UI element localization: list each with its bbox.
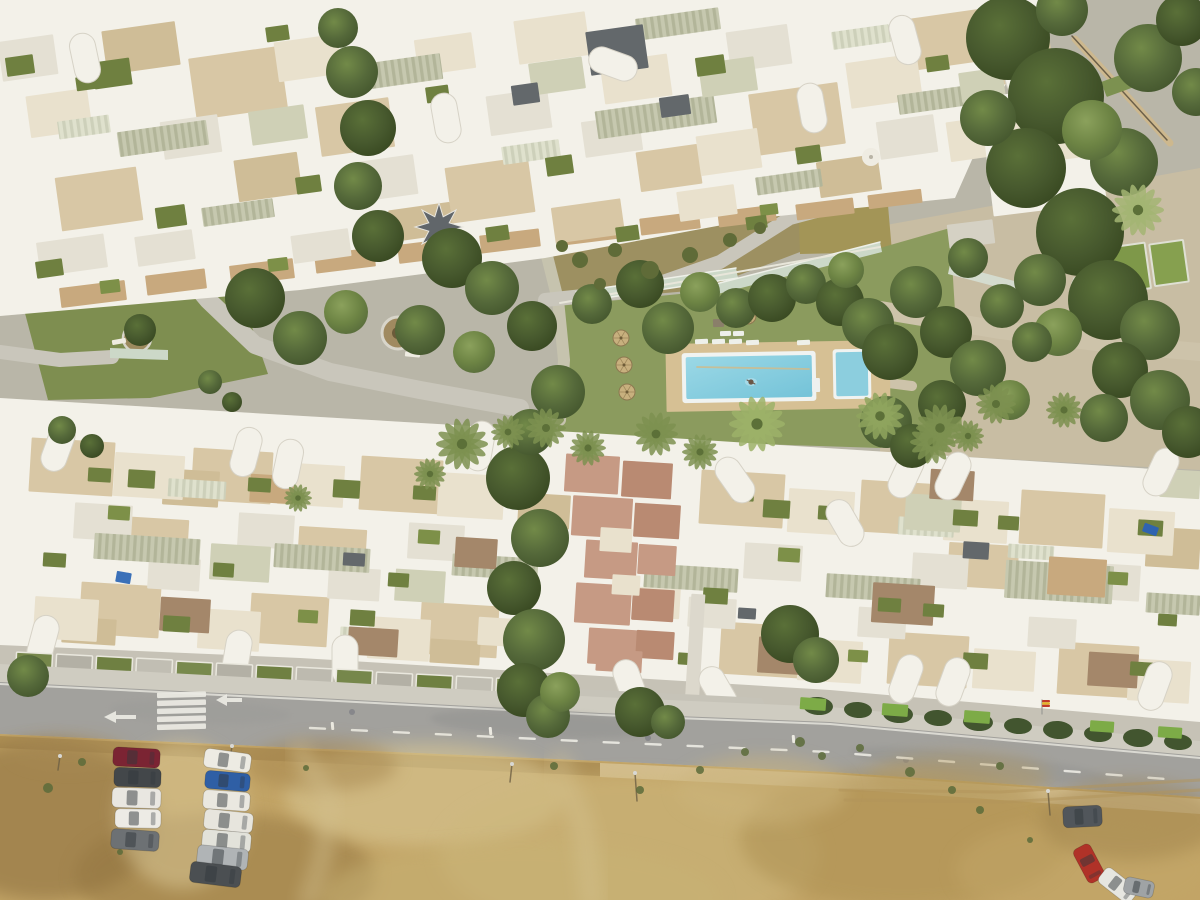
parked-car bbox=[113, 747, 161, 768]
roof-tile bbox=[168, 478, 227, 500]
ground-patch bbox=[677, 756, 847, 824]
path bbox=[0, 352, 112, 360]
tree bbox=[222, 392, 242, 412]
street-light-top bbox=[633, 771, 637, 775]
roof-tile bbox=[88, 467, 112, 482]
tree bbox=[980, 284, 1024, 328]
tree bbox=[453, 331, 495, 373]
aerial-photograph bbox=[0, 0, 1200, 900]
sun-lounger bbox=[712, 339, 725, 344]
roof-tile bbox=[925, 54, 950, 72]
parked-car bbox=[204, 770, 250, 792]
roof-tile bbox=[1018, 489, 1105, 548]
car-rear-glass bbox=[150, 771, 155, 784]
roof-tile bbox=[332, 479, 360, 499]
aerial-scene-svg bbox=[0, 0, 1200, 900]
roof-tile bbox=[5, 54, 35, 77]
roof-tile bbox=[265, 24, 290, 42]
roof-tile bbox=[388, 572, 410, 587]
green-pond bbox=[1149, 240, 1189, 286]
weed bbox=[795, 737, 805, 747]
roof-tile bbox=[43, 552, 67, 567]
roof-tile bbox=[778, 547, 801, 562]
roof-tile bbox=[1047, 556, 1107, 597]
palm-center bbox=[875, 411, 885, 421]
tree bbox=[651, 705, 685, 739]
roof-tile bbox=[848, 649, 869, 662]
parked-car bbox=[114, 767, 162, 788]
tree bbox=[80, 434, 104, 458]
tree bbox=[540, 672, 580, 712]
palm-center bbox=[652, 430, 661, 439]
weed bbox=[696, 766, 704, 774]
sun-lounger bbox=[720, 331, 731, 336]
roof-tile bbox=[248, 477, 272, 492]
shrub bbox=[572, 252, 588, 268]
car-rear-glass bbox=[148, 834, 154, 848]
shrub bbox=[594, 278, 606, 290]
tree bbox=[7, 655, 49, 697]
spanish-flag bbox=[1042, 702, 1050, 704]
parked-car bbox=[202, 789, 250, 811]
weed bbox=[78, 758, 86, 766]
roof-tile bbox=[636, 144, 703, 192]
palm-center bbox=[1133, 205, 1143, 215]
car-windshield bbox=[126, 790, 137, 805]
palm-center bbox=[542, 424, 550, 432]
tree bbox=[680, 272, 720, 312]
roof-tile bbox=[429, 638, 480, 665]
weed bbox=[550, 762, 558, 770]
front-lawn bbox=[1158, 726, 1183, 739]
tree bbox=[511, 509, 569, 567]
car-windshield bbox=[217, 793, 228, 808]
roof-tile bbox=[615, 224, 640, 242]
sun-lounger bbox=[746, 340, 759, 345]
palm-center bbox=[935, 423, 945, 433]
roof-tile bbox=[659, 94, 691, 118]
parked-car bbox=[110, 828, 159, 851]
tree bbox=[1062, 100, 1122, 160]
roof-tile bbox=[55, 167, 144, 232]
tree bbox=[225, 268, 285, 328]
weed bbox=[741, 748, 749, 756]
umbrella-pole bbox=[626, 391, 629, 394]
sun-lounger bbox=[733, 331, 744, 336]
shrub bbox=[608, 243, 622, 257]
main-pool bbox=[686, 355, 813, 399]
tree bbox=[572, 284, 612, 324]
palm-center bbox=[427, 471, 433, 477]
roof-tile bbox=[633, 503, 681, 540]
palm-center bbox=[457, 439, 467, 449]
street-light-top bbox=[230, 744, 234, 748]
car-windshield bbox=[212, 848, 225, 865]
tree bbox=[334, 162, 382, 210]
pool-steps bbox=[812, 378, 820, 392]
roof-tile bbox=[611, 574, 640, 596]
roof-tile bbox=[213, 562, 235, 577]
manhole bbox=[349, 709, 355, 715]
roof-tile bbox=[696, 128, 763, 176]
spanish-flag bbox=[1042, 705, 1050, 707]
tree bbox=[1080, 394, 1128, 442]
roof-tile bbox=[163, 615, 191, 633]
roof-tile bbox=[1158, 613, 1178, 626]
roof-tile bbox=[759, 203, 778, 216]
ground-patch bbox=[12, 736, 128, 768]
weed bbox=[948, 786, 956, 794]
front-lawn bbox=[1090, 720, 1115, 733]
front-lawn bbox=[882, 703, 909, 717]
street-light-top bbox=[1046, 789, 1050, 793]
tree bbox=[273, 311, 327, 365]
glass-walkway bbox=[110, 348, 168, 360]
roof-tile bbox=[99, 279, 120, 294]
tree bbox=[326, 46, 378, 98]
sun-lounger bbox=[695, 339, 708, 344]
sun-umbrella bbox=[613, 330, 629, 346]
car-windshield bbox=[217, 752, 229, 767]
weed bbox=[303, 765, 309, 771]
car-windshield bbox=[127, 750, 138, 765]
tree bbox=[486, 446, 550, 510]
car-windshield bbox=[125, 832, 137, 848]
roof-tile bbox=[343, 552, 366, 566]
roof-tile bbox=[695, 54, 726, 77]
roof-tile bbox=[350, 609, 376, 626]
parked-car bbox=[1062, 805, 1102, 828]
sun-umbrella bbox=[616, 357, 632, 373]
sun-umbrella bbox=[619, 384, 635, 400]
weed bbox=[636, 786, 644, 794]
roof-tile bbox=[923, 603, 945, 617]
car-rear-glass bbox=[1093, 808, 1098, 823]
roof-tile bbox=[762, 499, 790, 519]
front-lawn bbox=[800, 697, 827, 711]
weed bbox=[856, 744, 864, 752]
tree bbox=[352, 210, 404, 262]
roof-tile bbox=[703, 587, 729, 604]
weed bbox=[818, 752, 826, 760]
roof-tile bbox=[963, 541, 990, 560]
car-windshield bbox=[129, 811, 139, 825]
weed bbox=[976, 806, 984, 814]
spanish-flag bbox=[1042, 700, 1050, 702]
shrub bbox=[682, 247, 698, 263]
tree bbox=[198, 370, 222, 394]
palm-center bbox=[584, 444, 591, 451]
roof-tile bbox=[108, 505, 131, 520]
roof-tile bbox=[418, 529, 441, 544]
car-windshield bbox=[204, 865, 217, 882]
tree bbox=[318, 8, 358, 48]
roof-tile bbox=[876, 114, 939, 160]
tree bbox=[324, 290, 368, 334]
tree bbox=[507, 301, 557, 351]
tree bbox=[48, 416, 76, 444]
parked-car bbox=[112, 787, 162, 809]
umbrella-pole bbox=[620, 337, 623, 340]
roof-tile bbox=[485, 224, 510, 242]
roof-tile bbox=[298, 609, 319, 623]
shrub bbox=[723, 233, 737, 247]
roof-tile bbox=[878, 597, 902, 612]
roof-tile bbox=[445, 156, 536, 223]
roof-tile bbox=[998, 515, 1020, 530]
roof-tile bbox=[127, 469, 155, 489]
roof-tile bbox=[511, 82, 541, 106]
palm-center bbox=[751, 418, 762, 429]
car-rear-glass bbox=[239, 795, 245, 808]
car-windshield bbox=[1074, 808, 1083, 824]
palm-center bbox=[295, 495, 301, 501]
roof-tile bbox=[267, 257, 288, 272]
tree bbox=[642, 302, 694, 354]
roof-tile bbox=[295, 174, 322, 194]
roof-tile bbox=[1008, 544, 1055, 561]
roof-tile bbox=[637, 544, 677, 576]
tree bbox=[124, 314, 156, 346]
street-light-top bbox=[58, 754, 62, 758]
umbrella-pole bbox=[623, 364, 626, 367]
roof-tile bbox=[155, 204, 188, 229]
weed bbox=[996, 762, 1004, 770]
roof-tile bbox=[1108, 571, 1129, 585]
roof-tile bbox=[1027, 617, 1077, 650]
tree bbox=[793, 637, 839, 683]
palm-center bbox=[992, 400, 1000, 408]
sun-lounger bbox=[729, 339, 742, 344]
parked-car bbox=[115, 809, 161, 829]
tree bbox=[862, 324, 918, 380]
weed bbox=[905, 767, 915, 777]
roof-tile bbox=[795, 144, 822, 164]
roof-tile bbox=[454, 537, 498, 570]
tree bbox=[1012, 322, 1052, 362]
parasol-center bbox=[869, 155, 873, 159]
weed bbox=[43, 783, 53, 793]
tree bbox=[948, 238, 988, 278]
shrub bbox=[641, 261, 659, 279]
tree bbox=[487, 561, 541, 615]
roof-tile bbox=[953, 509, 979, 526]
tree bbox=[960, 90, 1016, 146]
car-windshield bbox=[218, 774, 229, 788]
roof-tile bbox=[621, 461, 673, 500]
car-rear-glass bbox=[149, 752, 154, 765]
roof-tile bbox=[1145, 592, 1200, 615]
palm-center bbox=[965, 433, 971, 439]
roof-tile bbox=[233, 152, 302, 202]
roof-tile bbox=[599, 527, 632, 553]
weed bbox=[117, 849, 123, 855]
roof-tile bbox=[738, 607, 757, 619]
car-rear-glass bbox=[150, 791, 155, 805]
shrub bbox=[754, 222, 766, 234]
palm-center bbox=[1060, 406, 1067, 413]
palm-center bbox=[696, 448, 703, 455]
weed bbox=[1027, 837, 1033, 843]
sun-lounger bbox=[797, 340, 810, 345]
front-lawn bbox=[964, 710, 991, 724]
tree bbox=[465, 261, 519, 315]
shrub bbox=[556, 240, 568, 252]
car-windshield bbox=[128, 770, 139, 784]
tree bbox=[828, 252, 864, 288]
street-light-top bbox=[510, 762, 514, 766]
car-windshield bbox=[218, 813, 230, 829]
roof-tile bbox=[545, 154, 574, 177]
tree bbox=[395, 305, 445, 355]
car-rear-glass bbox=[151, 812, 156, 825]
tree bbox=[503, 609, 565, 671]
ground-patch bbox=[870, 752, 1050, 804]
palm-center bbox=[505, 429, 512, 436]
tree bbox=[340, 100, 396, 156]
